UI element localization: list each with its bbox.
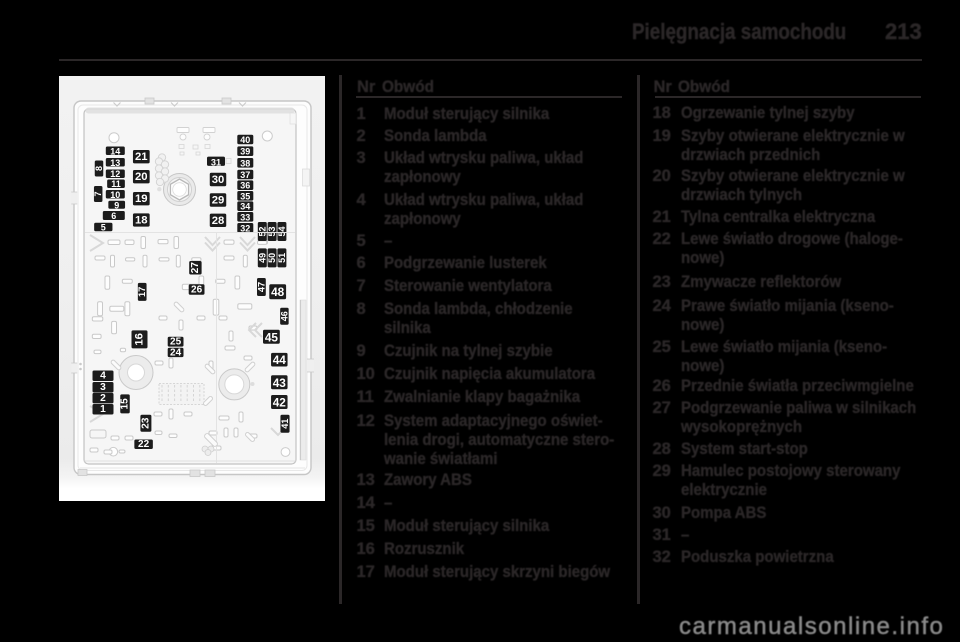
- svg-text:54: 54: [277, 226, 287, 236]
- svg-text:48: 48: [271, 285, 285, 299]
- svg-text:51: 51: [277, 253, 287, 263]
- svg-text:45: 45: [265, 330, 279, 344]
- svg-text:44: 44: [273, 353, 287, 367]
- svg-text:35: 35: [240, 191, 250, 201]
- svg-text:4: 4: [100, 371, 106, 382]
- svg-text:43: 43: [273, 376, 287, 390]
- svg-text:53: 53: [267, 226, 277, 236]
- svg-text:26: 26: [191, 285, 203, 296]
- svg-text:24: 24: [170, 347, 182, 358]
- svg-text:47: 47: [256, 282, 266, 292]
- svg-text:11: 11: [111, 179, 121, 189]
- svg-text:46: 46: [279, 311, 289, 321]
- svg-text:20: 20: [135, 171, 148, 183]
- svg-text:49: 49: [257, 253, 267, 263]
- svg-text:12: 12: [110, 169, 120, 179]
- svg-text:16: 16: [134, 333, 146, 346]
- svg-text:14: 14: [110, 146, 120, 156]
- svg-text:41: 41: [280, 419, 290, 429]
- svg-text:7: 7: [93, 191, 103, 196]
- svg-text:32: 32: [240, 223, 250, 233]
- svg-text:52: 52: [257, 226, 267, 236]
- svg-text:5: 5: [101, 223, 106, 233]
- svg-text:23: 23: [140, 417, 151, 429]
- svg-text:33: 33: [240, 212, 250, 222]
- svg-text:15: 15: [120, 398, 131, 410]
- svg-text:50: 50: [267, 253, 277, 263]
- svg-text:37: 37: [240, 170, 250, 180]
- svg-text:31: 31: [211, 158, 221, 168]
- svg-text:19: 19: [135, 193, 148, 205]
- svg-text:10: 10: [110, 190, 120, 200]
- svg-text:25: 25: [170, 337, 182, 348]
- svg-text:3: 3: [100, 382, 106, 393]
- svg-text:27: 27: [190, 262, 201, 274]
- svg-text:28: 28: [212, 215, 225, 227]
- svg-text:39: 39: [240, 147, 250, 157]
- svg-text:22: 22: [138, 439, 150, 450]
- svg-text:34: 34: [240, 202, 250, 212]
- svg-text:40: 40: [240, 135, 250, 145]
- svg-text:42: 42: [273, 396, 287, 410]
- svg-text:13: 13: [110, 158, 120, 168]
- svg-text:36: 36: [240, 181, 250, 191]
- svg-text:29: 29: [212, 195, 225, 207]
- svg-text:1: 1: [100, 404, 106, 415]
- svg-text:30: 30: [212, 174, 225, 186]
- svg-text:9: 9: [114, 200, 119, 210]
- svg-text:6: 6: [111, 211, 116, 221]
- svg-text:18: 18: [135, 215, 148, 227]
- svg-text:17: 17: [137, 287, 147, 297]
- svg-text:2: 2: [100, 393, 106, 404]
- svg-text:38: 38: [240, 158, 250, 168]
- svg-text:21: 21: [135, 151, 148, 163]
- svg-text:8: 8: [94, 166, 104, 171]
